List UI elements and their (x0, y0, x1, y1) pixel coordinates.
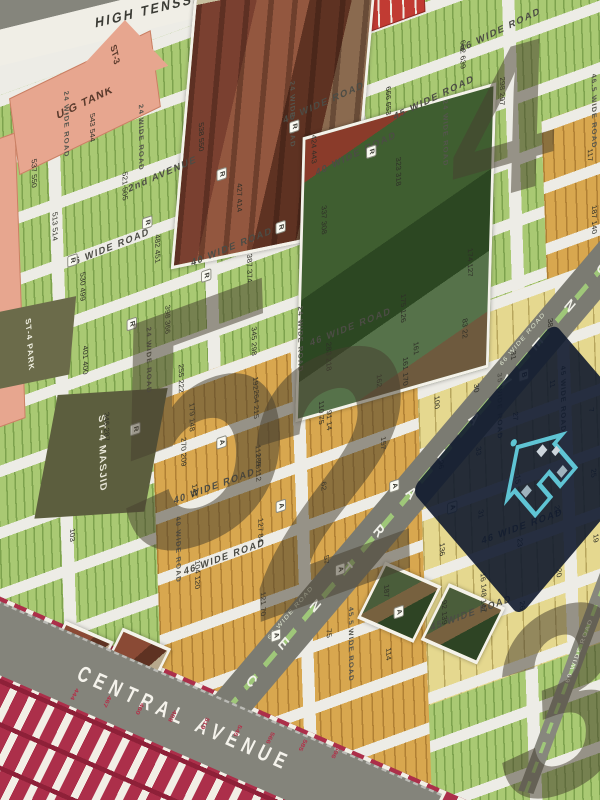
plot-number: 543 544 (88, 112, 97, 144)
st4-park-label: ST-4 PARK (24, 316, 36, 372)
plot-number: 666 653 (384, 85, 393, 117)
plot-number: 187 140 (590, 204, 599, 236)
master-plan-map-canvas: 2 HIGH TENSSION LINE MUNICIPAL U.G TANK … (0, 0, 600, 800)
cross-road-label: 24 WIDE ROAD (441, 99, 448, 168)
sector-numeral-2: 2 (240, 270, 425, 680)
cross-road-label: 46.5 WIDE ROAD (590, 73, 597, 150)
plot-number: 337 308 (320, 204, 329, 236)
plot-number: 513 514 (51, 211, 60, 243)
avenue-letter: N (561, 295, 579, 316)
plot-number: 136 (438, 541, 447, 557)
plot-number: 346 287 (102, 411, 111, 443)
plot-number: 530 499 (79, 271, 88, 303)
avenue-letter: U (593, 257, 600, 278)
plot-number: 103 (68, 527, 77, 543)
plot-number: 174 127 (466, 247, 475, 279)
st3-label: ST-3 (109, 42, 122, 66)
plot-number: 83 22 (461, 317, 470, 340)
plot-number: 537 550 (30, 158, 39, 190)
plot-number: 538 550 (197, 121, 206, 153)
sector-numeral-4: 4 (448, 1, 558, 245)
cross-road-label: 24 WIDE ROAD (137, 104, 144, 173)
cross-road-label: 24 WIDE ROAD (288, 80, 295, 149)
plot-number: 323 318 (394, 156, 403, 188)
plot-number: 100 (433, 394, 442, 410)
smart-home-circuit-logo-icon (467, 388, 600, 552)
plot-number: 148 147 (480, 582, 489, 614)
cross-road-label: 24 WIDE ROAD (62, 90, 69, 159)
map-photo-viewport: 2 HIGH TENSSION LINE MUNICIPAL U.G TANK … (0, 0, 600, 800)
plot-number: 401 400 (81, 344, 90, 376)
plot-number: 424 443 (310, 133, 319, 165)
plot-number: 92 139 (440, 599, 449, 626)
plot-number: 521 505 (121, 170, 130, 202)
